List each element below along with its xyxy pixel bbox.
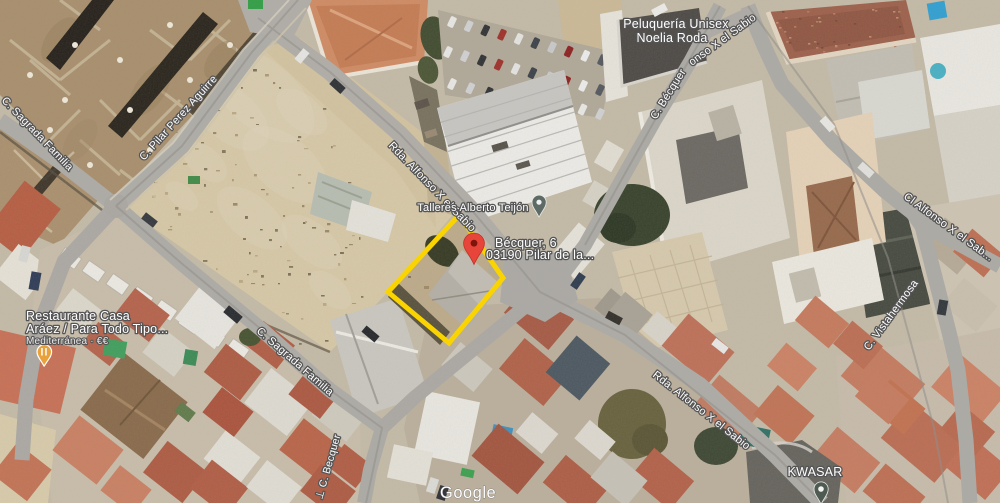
svg-text:KWASAR: KWASAR bbox=[788, 465, 843, 479]
svg-text:Noelia Roda: Noelia Roda bbox=[637, 31, 708, 45]
svg-text:Restaurante Casa: Restaurante Casa bbox=[26, 309, 130, 323]
svg-text:Aráez / Para Todo Tipo...: Aráez / Para Todo Tipo... bbox=[26, 322, 168, 336]
svg-text:Google: Google bbox=[440, 484, 496, 502]
svg-text:Talleres Alberto Teijón: Talleres Alberto Teijón bbox=[417, 202, 528, 214]
svg-text:Peluquería Unisex: Peluquería Unisex bbox=[623, 17, 729, 31]
svg-text:03190 Pilar de la...: 03190 Pilar de la... bbox=[486, 248, 594, 262]
svg-text:Mediterránea · €€: Mediterránea · €€ bbox=[26, 336, 109, 347]
